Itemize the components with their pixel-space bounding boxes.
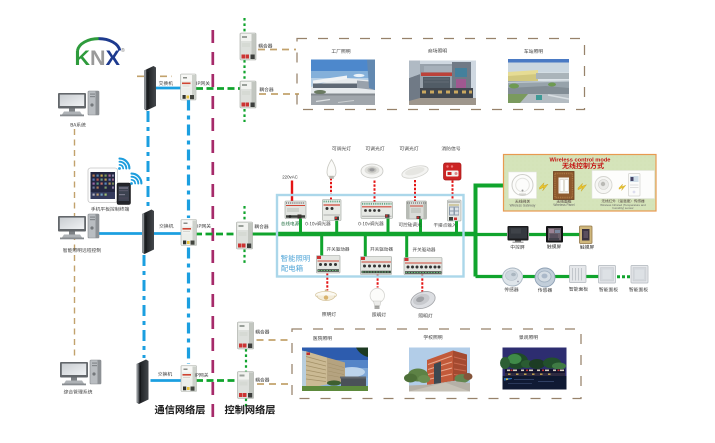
svg-text:KNX: KNX xyxy=(75,46,121,70)
svg-text:humidity) sensor: humidity) sensor xyxy=(612,206,633,210)
svg-text:®: ® xyxy=(121,47,125,54)
svg-text:Wireless Gateway: Wireless Gateway xyxy=(510,203,536,207)
svg-text:220vAC: 220vAC xyxy=(282,175,298,180)
svg-text:Wireless Panel: Wireless Panel xyxy=(553,203,575,207)
